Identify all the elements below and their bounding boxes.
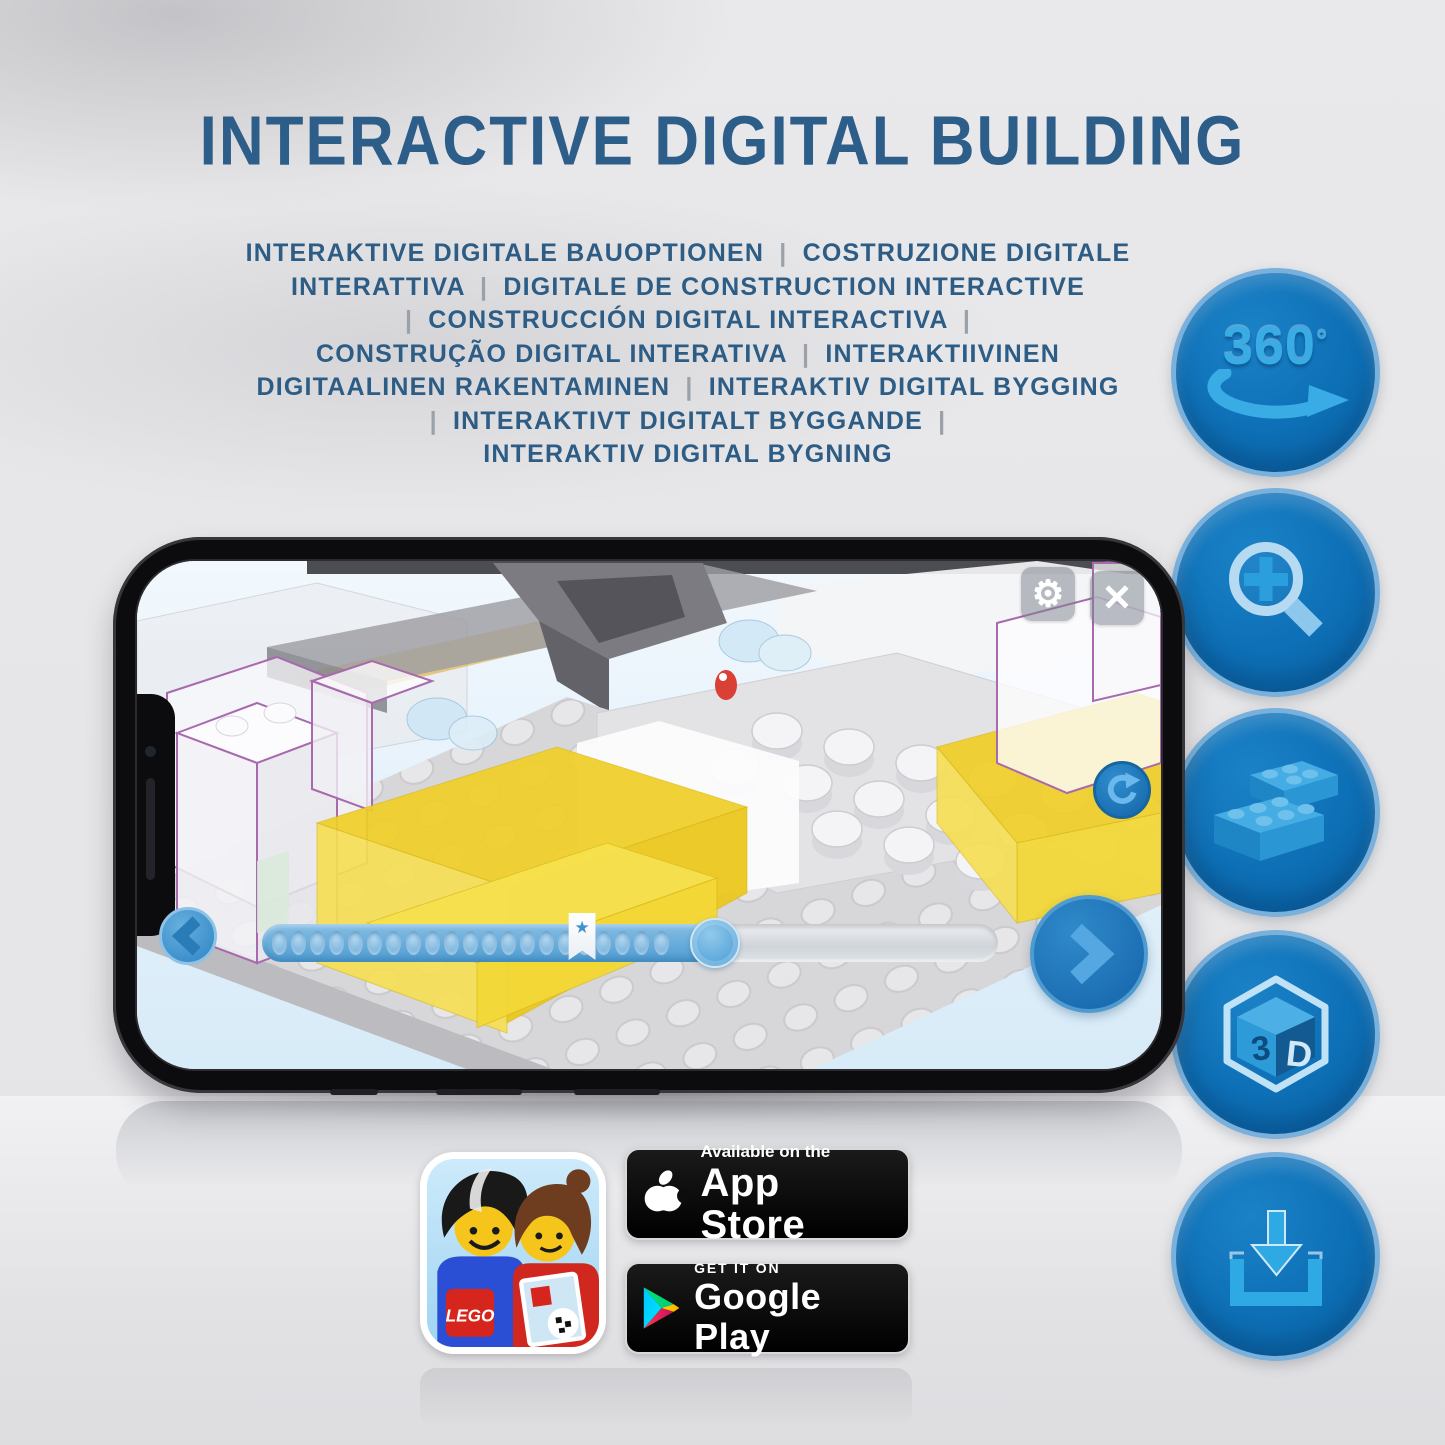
feature-360-rotation-icon: 360° (1171, 268, 1380, 477)
feature-3d-icon: 3 D (1171, 930, 1380, 1139)
subtitle-line: INTERATTIVA | DIGITALE DE CONSTRUCTION I… (88, 271, 1288, 305)
progress-dot (615, 931, 630, 955)
feature-brick-icon (1171, 708, 1380, 917)
close-button[interactable]: ✕ (1090, 571, 1144, 625)
progress-dot (291, 931, 306, 955)
progress-dot (520, 931, 535, 955)
progress-dot (386, 931, 401, 955)
360-label: 360° (1223, 318, 1328, 369)
subtitle-line: INTERAKTIV DIGITAL BYGNING (88, 438, 1288, 472)
subtitle-line: DIGITAALINEN RAKENTAMINEN | INTERAKTIV D… (88, 371, 1288, 405)
app-store-label: App Store (700, 1162, 894, 1246)
subtitle-line: INTERAKTIVE DIGITALE BAUOPTIONEN | COSTR… (88, 237, 1288, 271)
progress-fill (262, 924, 715, 962)
brick-stud (216, 716, 248, 736)
front-brick (1214, 797, 1324, 861)
progress-dot (634, 931, 649, 955)
feature-download-icon (1171, 1152, 1380, 1361)
progress-dot (463, 931, 478, 955)
previous-step-button[interactable] (159, 907, 217, 965)
app-store-tagline: Available on the (700, 1142, 894, 1162)
app-store-badge[interactable]: Available on the App Store (625, 1148, 910, 1240)
magnifier-plus-icon (1214, 531, 1338, 655)
settings-button[interactable]: ⚙ (1021, 567, 1075, 621)
progress-dot (654, 931, 669, 955)
red-fish-piece (715, 670, 737, 700)
rotation-arrow-icon (1201, 369, 1351, 421)
progress-dot (482, 931, 497, 955)
phone-power-button (330, 1089, 378, 1095)
lego-scene (137, 561, 1161, 1069)
phone-volume-up-button (436, 1089, 522, 1095)
rotate-model-button[interactable] (1093, 761, 1151, 819)
progress-dot (367, 931, 382, 955)
page-title: INTERACTIVE DIGITAL BUILDING (0, 102, 1445, 182)
svg-text:LEGO: LEGO (446, 1305, 495, 1325)
google-play-badge[interactable]: GET IT ON Google Play (625, 1262, 910, 1354)
slider-thumb[interactable] (690, 918, 740, 968)
phone-mockup: ⚙ ✕ ★ (113, 537, 1185, 1093)
badges-reflection (420, 1368, 912, 1428)
page-background: INTERACTIVE DIGITAL BUILDING INTERAKTIVE… (0, 0, 1445, 1445)
instruction-card (521, 1273, 585, 1345)
google-play-label: Google Play (694, 1277, 894, 1357)
download-arrow-icon (1219, 1201, 1333, 1313)
progress-dot (539, 931, 554, 955)
rotate-icon (1102, 770, 1142, 810)
progress-dot (425, 931, 440, 955)
subtitle: INTERAKTIVE DIGITALE BAUOPTIONEN | COSTR… (88, 237, 1288, 472)
progress-dot (272, 931, 287, 955)
svg-text:D: D (1284, 1032, 1314, 1075)
google-play-tagline: GET IT ON (694, 1259, 894, 1277)
progress-dot (596, 931, 611, 955)
earpiece-speaker (146, 778, 155, 880)
chevron-right-icon (1058, 914, 1120, 994)
progress-dot (501, 931, 516, 955)
subtitle-line: CONSTRUÇÃO DIGITAL INTERATIVA | INTERAKT… (88, 338, 1288, 372)
close-icon: ✕ (1102, 580, 1132, 616)
progress-dot (348, 931, 363, 955)
subtitle-line: | CONSTRUCCIÓN DIGITAL INTERACTIVA | (88, 304, 1288, 338)
progress-dot (310, 931, 325, 955)
lego-app-icon-art: LEGO (427, 1159, 599, 1347)
progress-dots (272, 930, 669, 956)
app-screen: ⚙ ✕ ★ (137, 561, 1161, 1069)
front-camera (145, 746, 156, 757)
lego-app-icon[interactable]: LEGO (420, 1152, 606, 1354)
gear-icon: ⚙ (1032, 576, 1064, 612)
google-play-icon (641, 1284, 682, 1332)
feature-zoom-icon (1171, 488, 1380, 697)
build-progress-slider[interactable]: ★ (262, 924, 998, 962)
next-step-button[interactable] (1030, 895, 1148, 1013)
3d-cube-icon: 3 D (1213, 975, 1339, 1095)
green-slot (257, 851, 289, 933)
brick-stud (264, 703, 296, 723)
phone-volume-down-button (574, 1089, 660, 1095)
lego-bricks-icon (1206, 753, 1346, 873)
apple-icon (641, 1166, 688, 1222)
progress-dot (406, 931, 421, 955)
subtitle-line: | INTERAKTIVT DIGITALT BYGGANDE | (88, 405, 1288, 439)
phone-notch (137, 694, 175, 936)
progress-dot (329, 931, 344, 955)
progress-dot (444, 931, 459, 955)
chevron-left-icon (165, 911, 211, 961)
